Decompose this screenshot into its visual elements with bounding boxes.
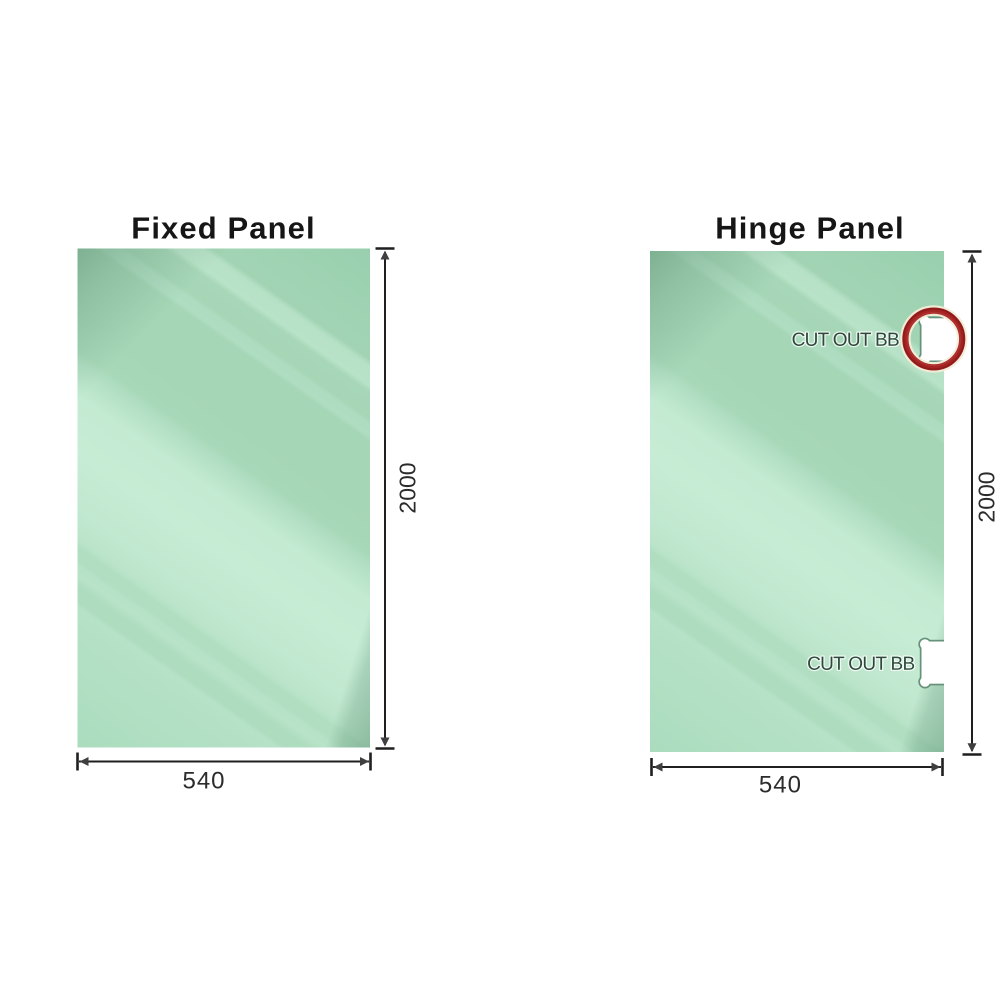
svg-text:540: 540 (759, 772, 802, 799)
svg-text:CUT OUT BB: CUT OUT BB (807, 654, 914, 675)
svg-text:CUT OUT BB: CUT OUT BB (792, 330, 899, 351)
svg-text:2000: 2000 (973, 471, 999, 522)
svg-text:Fixed Panel: Fixed Panel (131, 210, 315, 245)
svg-text:Hinge Panel: Hinge Panel (715, 210, 905, 245)
svg-text:2000: 2000 (394, 462, 420, 513)
svg-text:540: 540 (182, 768, 225, 795)
